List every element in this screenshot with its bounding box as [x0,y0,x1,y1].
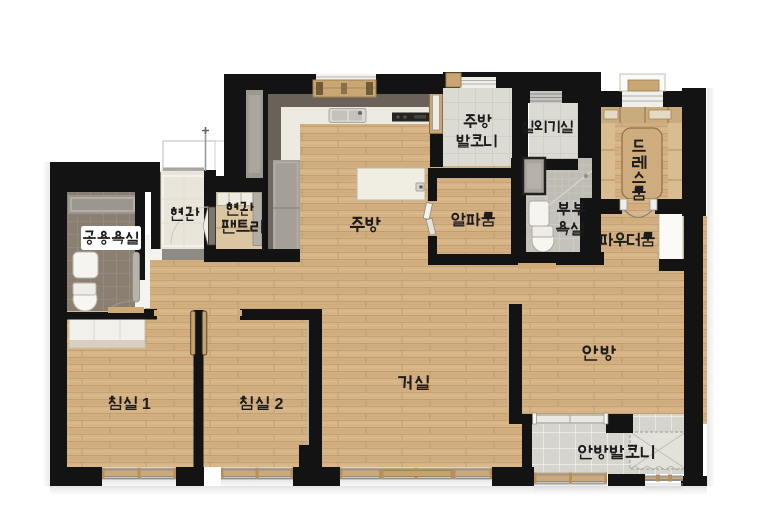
svg-text:1: 1 [142,395,151,413]
svg-text:2: 2 [275,395,284,413]
